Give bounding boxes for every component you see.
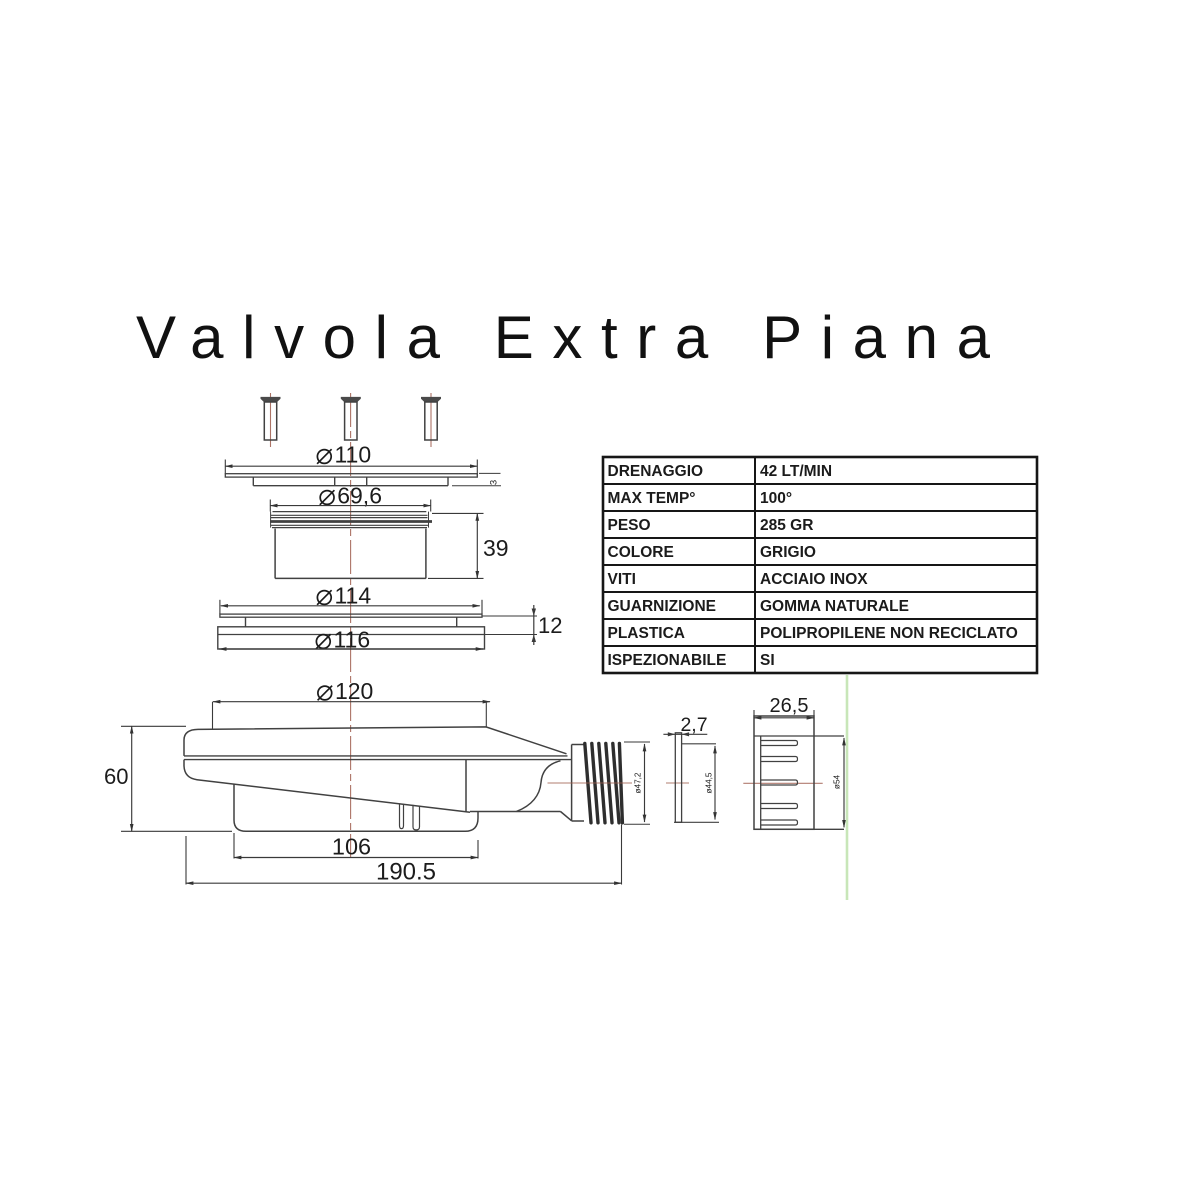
svg-text:2,7: 2,7 (680, 714, 707, 736)
svg-text:PESO: PESO (608, 517, 651, 534)
svg-text:ø54: ø54 (833, 774, 842, 789)
svg-text:110: 110 (334, 442, 371, 468)
svg-text:190.5: 190.5 (376, 859, 436, 886)
svg-text:39: 39 (483, 535, 509, 561)
svg-text:ACCIAIO INOX: ACCIAIO INOX (760, 571, 868, 588)
svg-text:100°: 100° (760, 490, 792, 507)
svg-text:ø44,5: ø44,5 (705, 772, 714, 793)
svg-text:PLASTICA: PLASTICA (608, 625, 686, 642)
svg-text:DRENAGGIO: DRENAGGIO (608, 463, 704, 480)
svg-text:GRIGIO: GRIGIO (760, 544, 816, 561)
svg-text:MAX TEMP°: MAX TEMP° (608, 490, 696, 507)
svg-text:3: 3 (489, 480, 500, 485)
svg-text:60: 60 (104, 764, 128, 789)
svg-text:42 LT/MIN: 42 LT/MIN (760, 463, 832, 480)
svg-text:POLIPROPILENE NON RECICLATO: POLIPROPILENE NON RECICLATO (760, 625, 1018, 642)
svg-text:Valvola Extra Piana: Valvola Extra Piana (136, 304, 1009, 371)
svg-text:GUARNIZIONE: GUARNIZIONE (608, 598, 717, 615)
svg-text:COLORE: COLORE (608, 544, 674, 561)
svg-text:106: 106 (332, 834, 371, 860)
svg-text:69,6: 69,6 (337, 483, 382, 509)
svg-text:120: 120 (335, 678, 373, 704)
svg-text:ø47,2: ø47,2 (634, 772, 643, 793)
svg-text:285 GR: 285 GR (760, 517, 813, 534)
svg-text:26,5: 26,5 (770, 695, 809, 717)
svg-text:12: 12 (538, 613, 562, 638)
svg-text:VITI: VITI (608, 571, 636, 588)
svg-text:114: 114 (334, 583, 371, 609)
svg-text:SI: SI (760, 652, 775, 669)
svg-text:GOMMA NATURALE: GOMMA NATURALE (760, 598, 909, 615)
svg-text:ISPEZIONABILE: ISPEZIONABILE (608, 652, 727, 669)
